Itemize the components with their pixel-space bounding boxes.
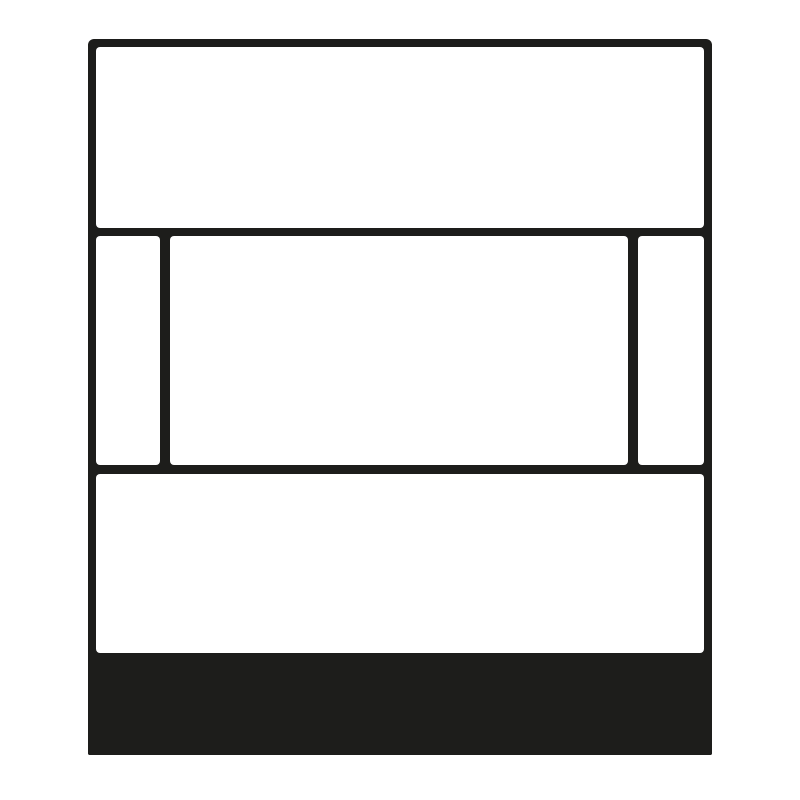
plate-frame-outline <box>88 39 712 755</box>
right-side-strip <box>638 236 704 465</box>
center-window-panel <box>170 236 628 465</box>
bottom-panel <box>96 474 704 653</box>
solid-base-band <box>88 653 712 755</box>
drawing-canvas <box>0 0 800 800</box>
left-side-strip <box>96 236 160 465</box>
top-panel <box>96 47 704 228</box>
